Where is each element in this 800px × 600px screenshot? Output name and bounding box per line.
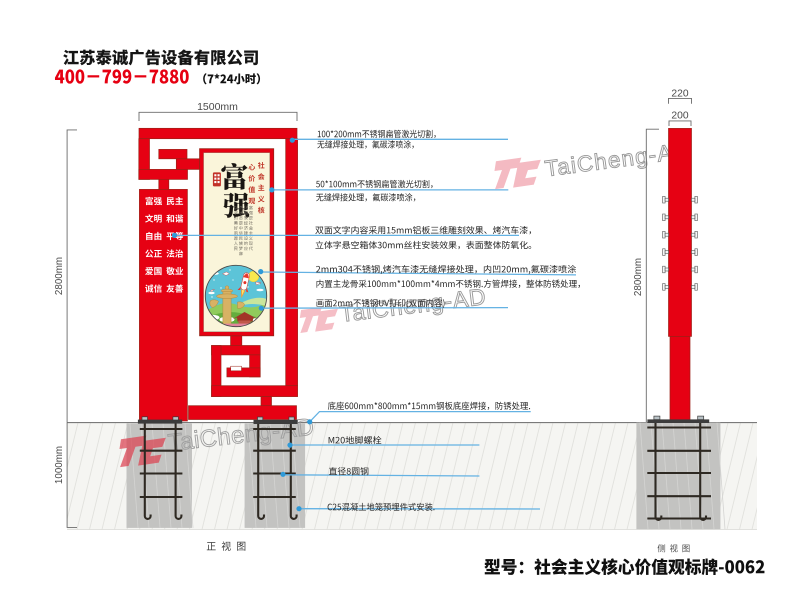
svg-text:1000mm: 1000mm [54, 446, 65, 484]
svg-text:TaiCheng-AD: TaiCheng-AD [338, 283, 488, 327]
svg-text:2800mm: 2800mm [54, 257, 65, 295]
svg-text:2800mm: 2800mm [633, 258, 644, 296]
svg-text:220: 220 [671, 88, 688, 99]
svg-text:1500mm: 1500mm [197, 101, 238, 113]
svg-text:200: 200 [671, 111, 688, 122]
